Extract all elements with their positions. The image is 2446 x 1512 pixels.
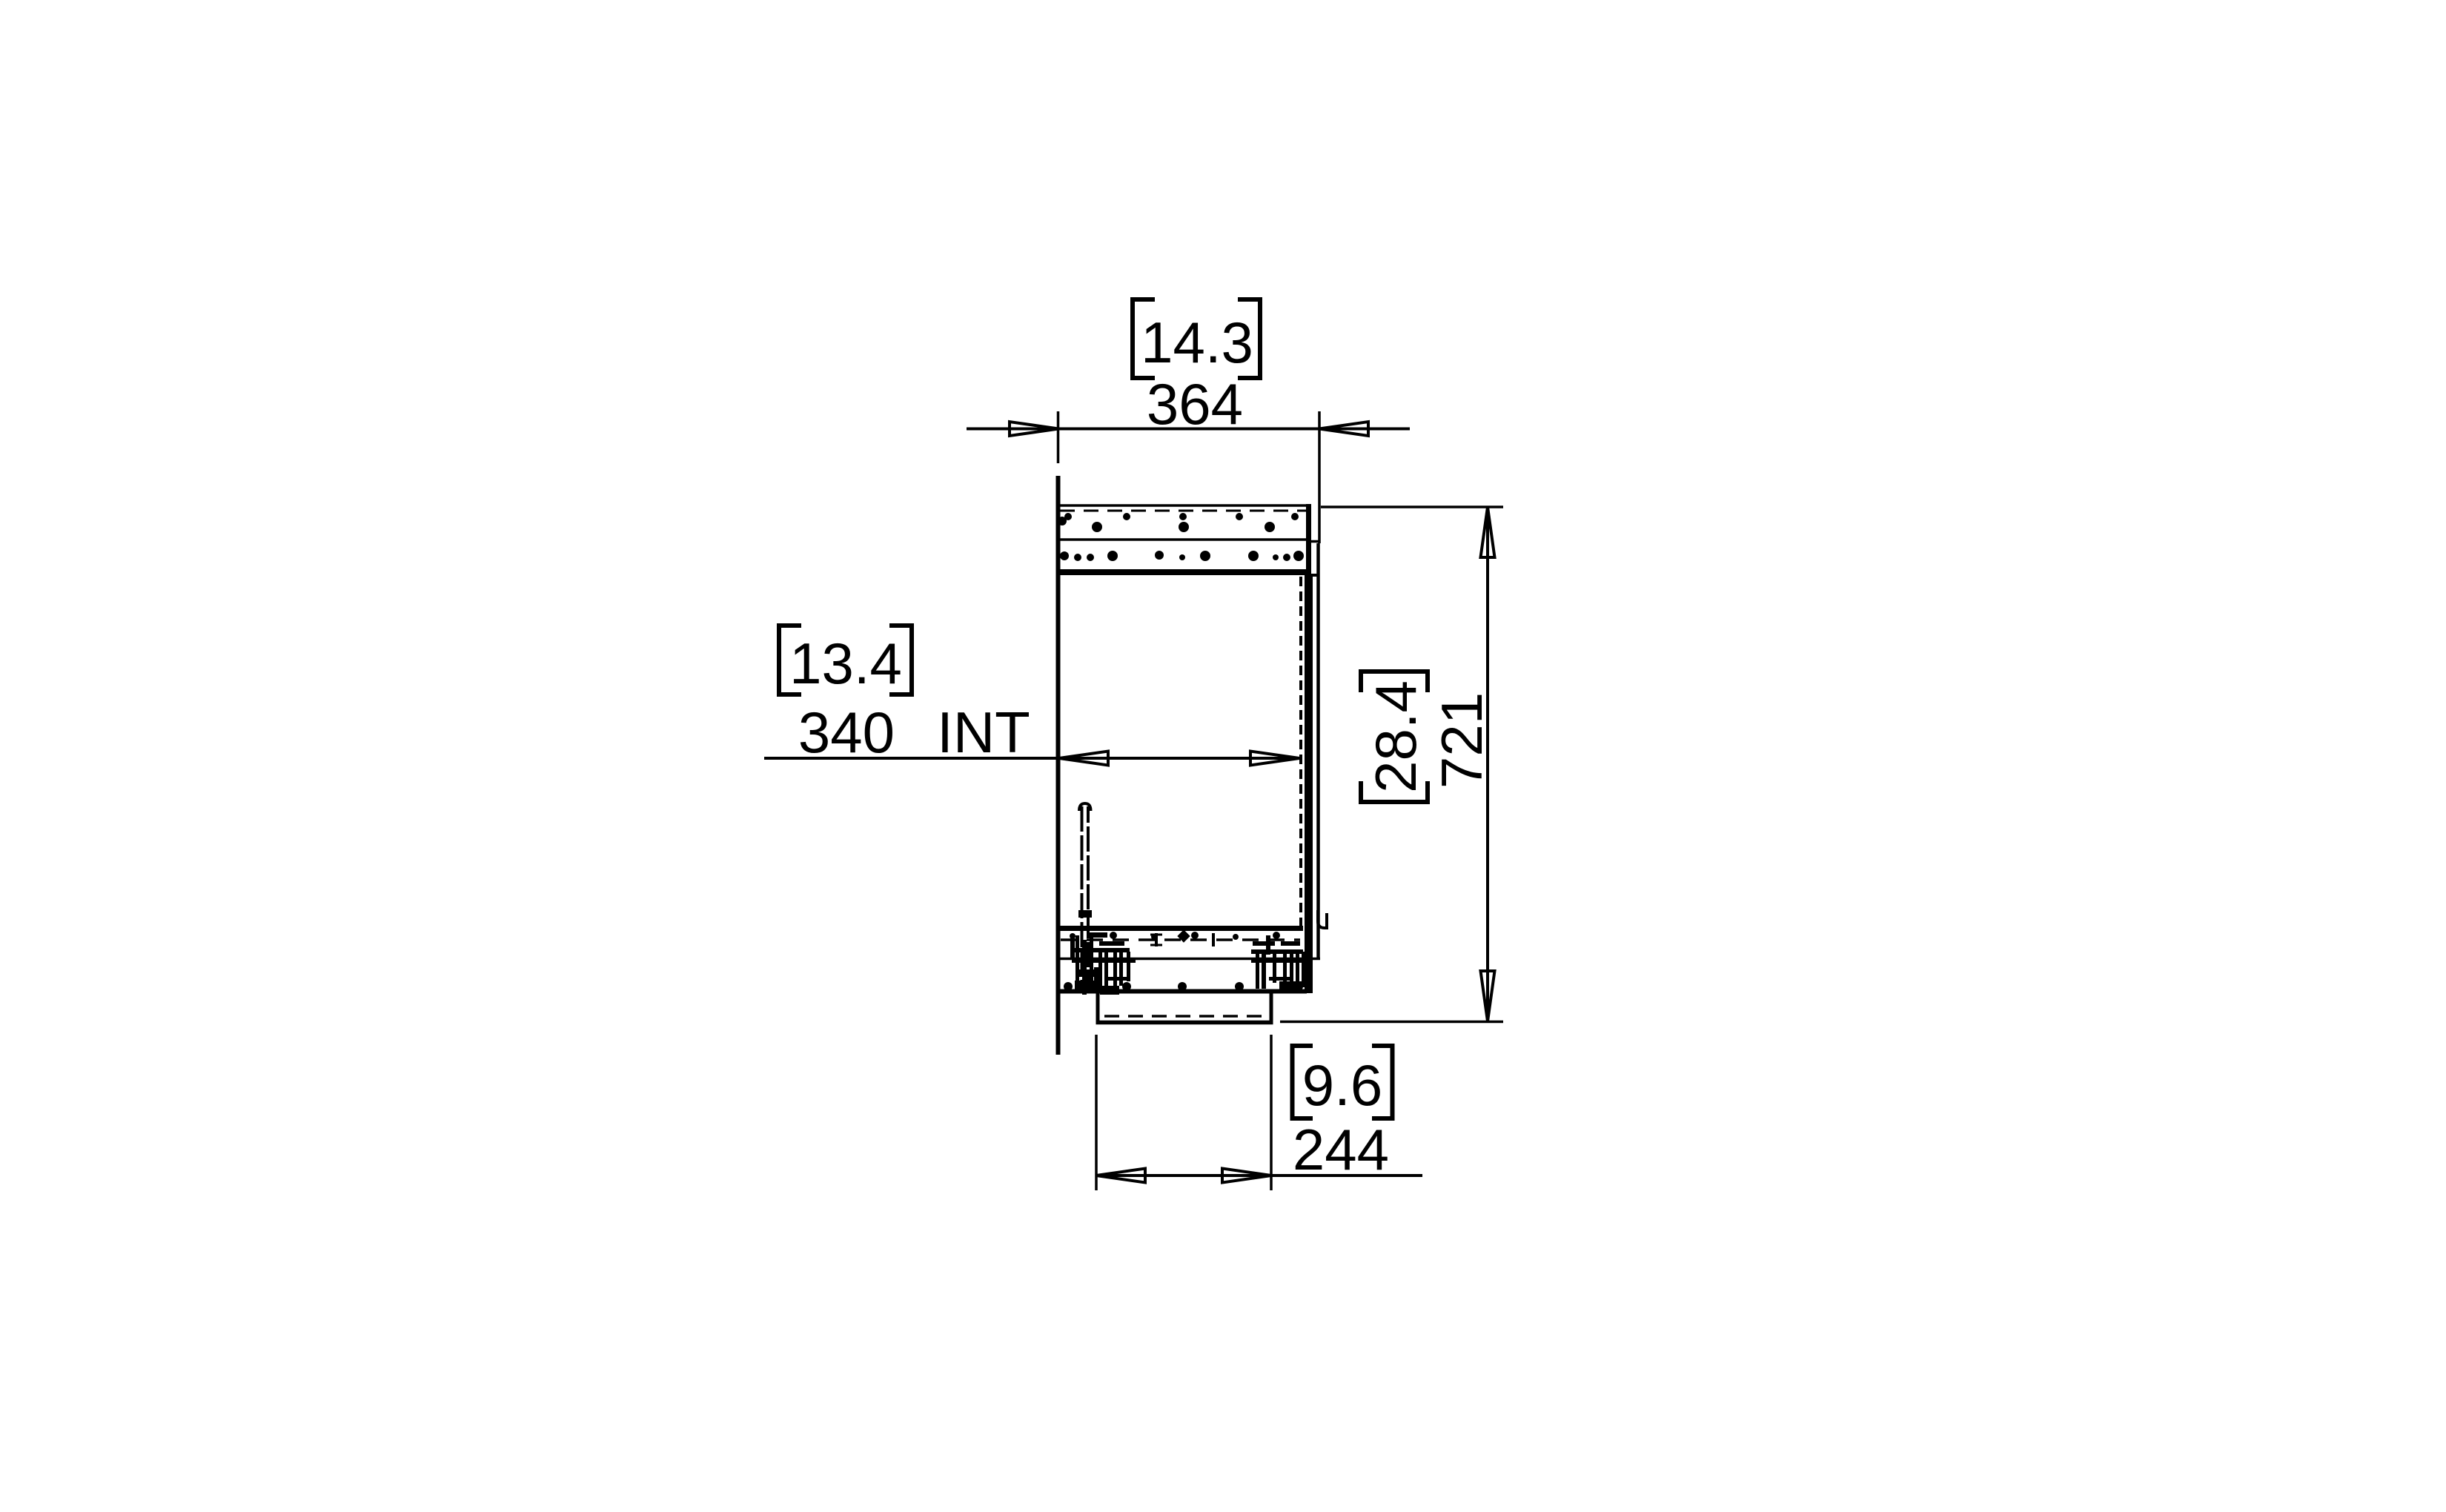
svg-text:364: 364 [1147,371,1243,437]
svg-text:721: 721 [1429,692,1494,789]
svg-text:244: 244 [1293,1117,1389,1182]
svg-text:14.3: 14.3 [1141,310,1253,375]
svg-text:28.4: 28.4 [1363,680,1428,793]
svg-text:INT: INT [937,700,1030,765]
svg-text:9.6: 9.6 [1302,1052,1382,1118]
svg-text:340: 340 [798,700,895,765]
svg-text:13.4: 13.4 [789,631,902,696]
